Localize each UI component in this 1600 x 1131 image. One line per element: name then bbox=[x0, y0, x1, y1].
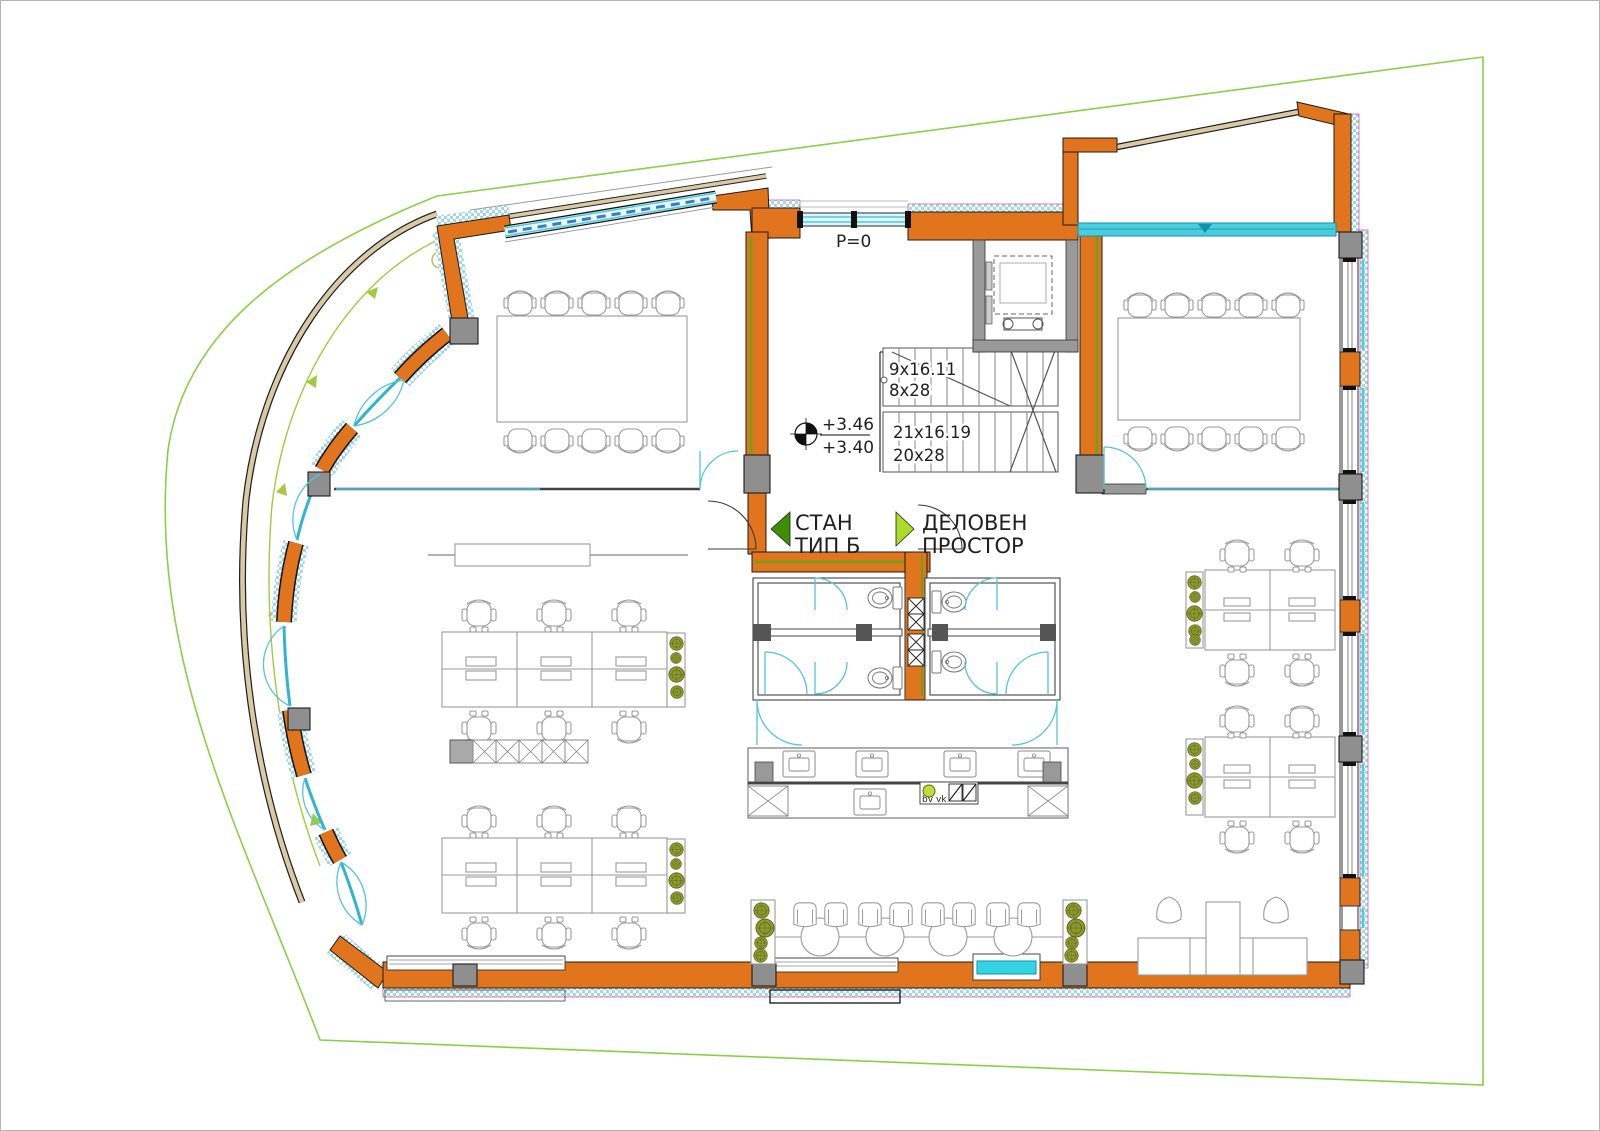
stair-run-lower-a: 21x16.19 bbox=[893, 423, 971, 442]
kitchen-detail-note: bv vk bbox=[920, 782, 978, 805]
toilet bbox=[932, 591, 966, 613]
apartment-label-line1: СТАН bbox=[795, 511, 853, 535]
office-label-line2: ПРОСТОР bbox=[922, 534, 1024, 558]
toilet bbox=[868, 587, 902, 609]
level-upper: +3.46 bbox=[822, 415, 874, 435]
stair-run-upper-b: 8x28 bbox=[889, 381, 930, 400]
toilet bbox=[868, 667, 902, 689]
level-lower: +3.40 bbox=[822, 438, 874, 458]
entry-level-label: P=0 bbox=[836, 232, 871, 252]
storage-cabinets bbox=[450, 740, 588, 763]
kitchen-note-a: bv bbox=[922, 795, 934, 805]
floor-plan-drawing: bv vk bbox=[0, 0, 1600, 1131]
floor-plan-page: bv vk bbox=[0, 0, 1600, 1131]
kitchen-note-b: vk bbox=[936, 795, 947, 805]
toilet bbox=[932, 651, 966, 673]
stair-run-lower-b: 20x28 bbox=[893, 446, 945, 465]
kitchen-counter: bv vk bbox=[748, 748, 1068, 818]
apartment-label-line2: ТИП Б bbox=[794, 534, 860, 558]
office-label-line1: ДЕЛОВЕН bbox=[922, 511, 1027, 535]
stair-run-upper-a: 9x16.11 bbox=[889, 360, 957, 379]
